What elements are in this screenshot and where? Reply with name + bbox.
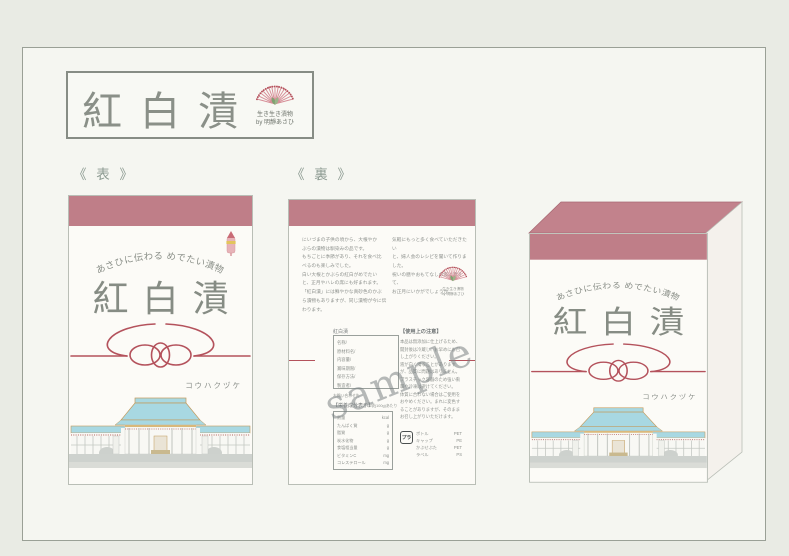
back-top-band: [289, 200, 475, 226]
nutrient-name: 炭水化物: [337, 437, 353, 445]
fan-icon: [436, 261, 470, 282]
recycle-part: ラベル: [416, 452, 429, 459]
plastic-recycle-mark-icon: プラ: [400, 431, 413, 444]
nutrition-row: ビタミンC mg: [337, 452, 389, 460]
nutrient-unit: mg: [383, 452, 389, 460]
caution-line: ることがありますが、そのまま: [400, 406, 470, 414]
intro-line: にいづまの子供の頃から、大根やか: [302, 236, 388, 245]
fan-caption-line2: by 明靜あさひ: [435, 292, 471, 297]
nutrition-row: 食塩相当量 g: [337, 444, 389, 452]
intro-line: ら漬物もありますが、同じ漬物が今に伝わります。: [302, 297, 388, 314]
recycle-material: PS: [456, 452, 462, 459]
back-fan-block: 生き生き漬物 by 明靜あさひ: [435, 261, 471, 296]
front-section-label: 《 表 》: [73, 163, 136, 183]
box-side-face: [706, 202, 742, 481]
nutrient-name: 食塩相当量: [337, 444, 357, 452]
recycle-material-list: ボトル PET キャップ PE かぶせぶた PET ラベル PS: [416, 431, 462, 459]
nutrition-row: 炭水化物 g: [337, 437, 389, 445]
recycle-row: ボトル PET: [416, 431, 462, 438]
design-sheet: 紅白漬 生き生き漬物 by 明靜あさひ 《 表 》 《 裏 》 あさひに伝わる …: [22, 47, 766, 541]
intro-line: ぶらの漬物は馴染みの品です。: [302, 245, 388, 254]
nutrient-name: ビタミンC: [337, 452, 356, 460]
box-top-face: [529, 202, 742, 233]
box-front-face: あさひに伝わる めでたい漬物 紅白漬 コウハクヅケ: [529, 233, 706, 481]
fan-caption-line1: 生き生き漬物: [246, 111, 304, 119]
shrine-illustration: [530, 403, 707, 472]
nutrition-row: 脂質 g: [337, 429, 389, 437]
recycle-row: ラベル PS: [416, 452, 462, 459]
box-front-design: あさひに伝わる めでたい漬物 紅白漬 コウハクヅケ: [529, 233, 708, 483]
nutrition-row: コレステロール mg: [337, 459, 389, 467]
back-section-label: 《 裏 》: [291, 163, 354, 183]
label-row: 名称/: [337, 339, 395, 348]
recycle-info-block: プラ ボトル PET キャップ PE かぶせぶた PET ラベル PS: [400, 431, 462, 459]
nutrient-unit: g: [387, 444, 389, 452]
front-katakana-caption: コウハクヅケ: [185, 380, 242, 391]
recycle-material: PET: [454, 431, 462, 438]
recycle-row: かぶせぶた PET: [416, 445, 462, 452]
intro-line: 気軽にもっと多く食べていただきたい: [392, 236, 470, 253]
intro-line: もちごとに季節があり、それを食べ比: [302, 253, 388, 262]
caution-line: お召し上がりいただけます。: [400, 413, 470, 421]
nutrient-name: 脂質: [337, 429, 345, 437]
front-product-title: 紅白漬: [69, 270, 252, 322]
mizuhiki-knot-illustration: [530, 342, 707, 387]
brand-logo-title: 紅白漬: [82, 79, 256, 137]
package-back-panel: にいづまの子供の頃から、大根やかぶらの漬物は馴染みの品です。もちごとに季節があり…: [288, 199, 476, 485]
nutrient-name: コレステロール: [337, 459, 366, 467]
shrine-illustration: [69, 392, 252, 472]
nutrient-unit: g: [387, 429, 389, 437]
front-product-title: 紅白漬: [530, 298, 707, 343]
fan-icon: [252, 78, 298, 106]
recycle-material: PE: [456, 438, 462, 445]
recycle-part: キャップ: [416, 438, 433, 445]
recycle-part: ボトル: [416, 431, 429, 438]
front-katakana-caption: コウハクヅケ: [642, 392, 697, 401]
intro-line: べるのも楽しみでした。: [302, 262, 388, 271]
caution-line: おやめください。まれに変色す: [400, 398, 470, 406]
caution-heading: 【使用上の注意】: [400, 328, 442, 335]
recycle-row: キャップ PE: [416, 438, 462, 445]
front-top-band: [69, 196, 252, 226]
wraparound-cord-line-left: [289, 360, 315, 361]
mizuhiki-knot-illustration: [69, 322, 252, 374]
recycle-material: PET: [454, 445, 462, 452]
nutrient-unit: mg: [383, 459, 389, 467]
package-front-panel: あさひに伝わる めでたい漬物 紅白漬 コウハクヅケ: [68, 195, 253, 485]
nutrient-unit: kcal: [382, 414, 389, 422]
recycle-part: かぶせぶた: [416, 445, 437, 452]
label-box-title: 紅白漬: [333, 328, 348, 335]
intro-line: 白い大根とかぶらの紅白がめでたい: [302, 271, 388, 280]
back-intro-left-column: にいづまの子供の頃から、大根やかぶらの漬物は馴染みの品です。もちごとに季節があり…: [302, 236, 388, 314]
front-top-band: [530, 234, 707, 260]
nutrient-unit: g: [387, 422, 389, 430]
brand-logo-box: 紅白漬 生き生き漬物 by 明靜あさひ: [66, 71, 314, 139]
intro-line: と、正月やハレの席にも好まれます。: [302, 279, 388, 288]
brand-fan-block: 生き生き漬物 by 明靜あさひ: [246, 78, 304, 127]
intro-line: 「紅白漬」には鮮やかな真砂色のかぶ: [302, 288, 388, 297]
label-row: 原材料名/: [337, 348, 395, 357]
nutrient-unit: g: [387, 437, 389, 445]
fan-caption-line2: by 明靜あさひ: [246, 119, 304, 127]
